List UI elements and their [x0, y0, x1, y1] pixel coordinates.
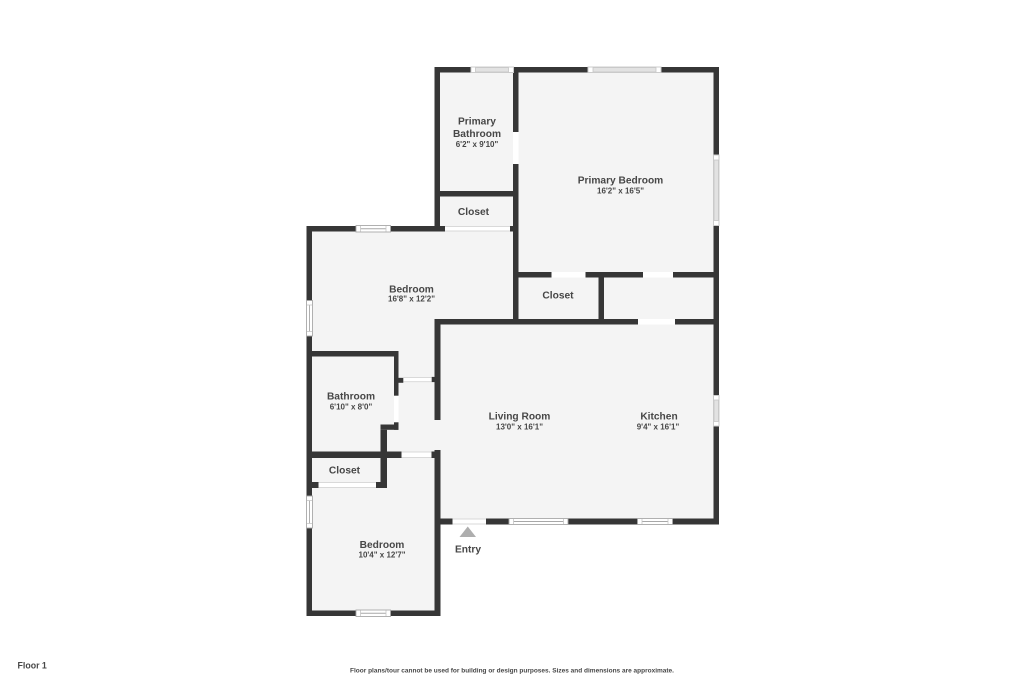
svg-text:Closet: Closet — [542, 291, 574, 302]
svg-text:Primary: Primary — [458, 117, 496, 128]
svg-text:Primary Bedroom: Primary Bedroom — [578, 176, 664, 187]
svg-text:16'2" x 16'5": 16'2" x 16'5" — [597, 187, 644, 196]
svg-text:9'4" x 16'1": 9'4" x 16'1" — [637, 423, 680, 432]
svg-text:6'2" x 9'10": 6'2" x 9'10" — [456, 140, 499, 149]
svg-text:16'8" x 12'2": 16'8" x 12'2" — [388, 295, 435, 304]
svg-text:6'10" x 8'0": 6'10" x 8'0" — [330, 403, 373, 412]
svg-text:Kitchen: Kitchen — [640, 412, 677, 423]
svg-text:Floor 1: Floor 1 — [18, 661, 47, 671]
svg-text:13'0" x 16'1": 13'0" x 16'1" — [496, 423, 543, 432]
svg-text:Entry: Entry — [455, 545, 481, 556]
svg-text:Closet: Closet — [329, 466, 361, 477]
svg-text:Bathroom: Bathroom — [327, 392, 375, 403]
svg-text:10'4" x 12'7": 10'4" x 12'7" — [359, 551, 406, 560]
svg-text:Bathroom: Bathroom — [453, 129, 501, 140]
svg-text:Closet: Closet — [458, 207, 490, 218]
svg-text:Bedroom: Bedroom — [360, 540, 405, 551]
svg-text:Living Room: Living Room — [489, 412, 551, 423]
svg-text:Floor plans/tour cannot be use: Floor plans/tour cannot be used for buil… — [350, 668, 674, 675]
